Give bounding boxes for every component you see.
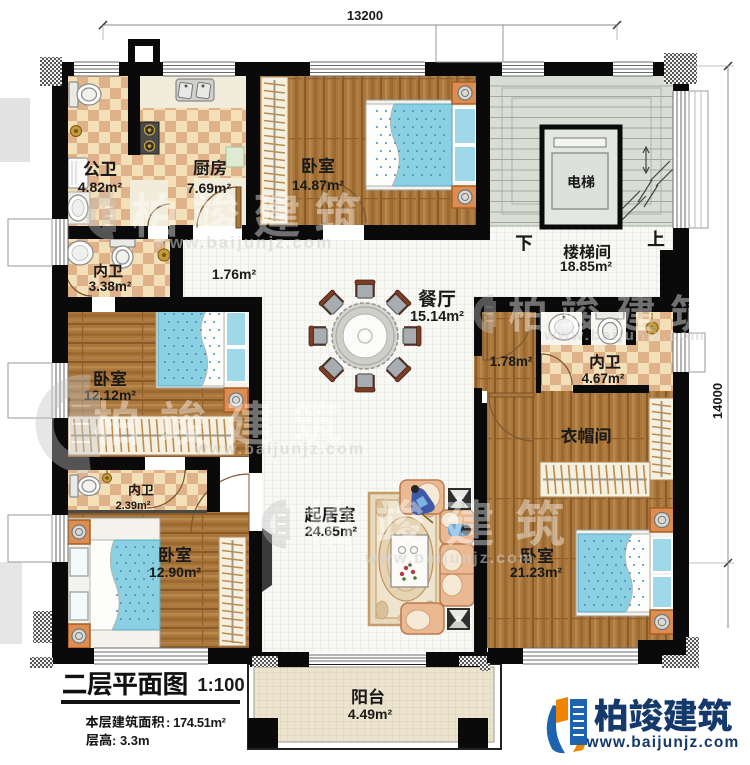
svg-text:: 3.3m: : 3.3m [112, 733, 150, 748]
svg-text:13200: 13200 [347, 8, 383, 23]
svg-text:15.14m²: 15.14m² [410, 309, 464, 325]
svg-text:1.76m²: 1.76m² [212, 266, 257, 282]
svg-text:14.87m²: 14.87m² [292, 177, 344, 193]
svg-text:14000: 14000 [710, 383, 725, 419]
svg-text:www.baijunjz.com: www.baijunjz.com [364, 550, 535, 567]
svg-text:18.85m²: 18.85m² [560, 258, 612, 274]
svg-text:1:100: 1:100 [197, 674, 244, 695]
svg-text:www.baijunjz.com: www.baijunjz.com [586, 734, 740, 751]
svg-text:4.49m²: 4.49m² [348, 706, 393, 722]
svg-text:12.90m²: 12.90m² [149, 564, 201, 580]
svg-text:3.38m²: 3.38m² [89, 279, 132, 294]
svg-text:www.baijunjz.com: www.baijunjz.com [194, 441, 365, 458]
svg-text:: 174.51m²: : 174.51m² [166, 715, 227, 730]
svg-text:2.39m²: 2.39m² [116, 500, 151, 512]
svg-text:1.78m²: 1.78m² [490, 354, 533, 369]
svg-text:4.82m²: 4.82m² [78, 179, 123, 195]
svg-text:4.67m²: 4.67m² [582, 371, 625, 386]
svg-text:www.baijunjz.com: www.baijunjz.com [154, 233, 334, 252]
svg-text:www.baijunjz.com: www.baijunjz.com [543, 327, 705, 344]
